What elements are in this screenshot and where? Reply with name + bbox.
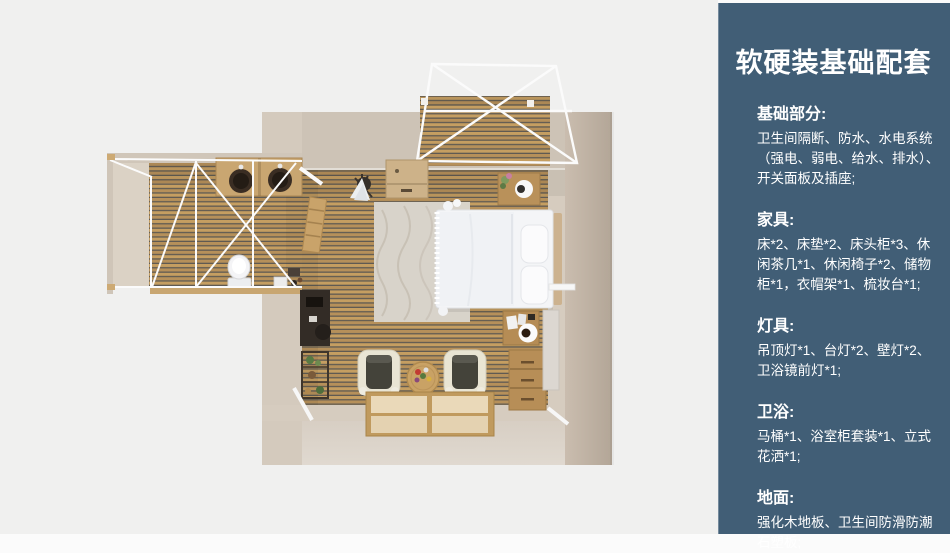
nightstand-top	[498, 173, 540, 205]
floor-mat	[366, 392, 494, 436]
render-canvas	[0, 0, 718, 534]
spec-sections: 基础部分: 卫生间隔断、防水、水电系统 （强电、弱电、给水、排水）、 开关面板及…	[719, 79, 950, 553]
pillow	[521, 225, 548, 263]
bathroom-annex	[107, 153, 302, 294]
section-bathroom: 卫浴: 马桶*1、浴室柜套装*1、立式 花洒*1;	[757, 402, 940, 467]
drawer-chest	[509, 350, 546, 410]
section-body: 强化木地板、卫生间防滑防潮 石塑板;	[757, 513, 940, 553]
section-body: 吊顶灯*1、台灯*2、壁灯*2、 卫浴镜前灯*1;	[757, 341, 940, 381]
section-body: 床*2、床垫*2、床头柜*3、休 闲茶几*1、休闲椅子*2、储物 柜*1，衣帽架…	[757, 235, 940, 295]
panel-title: 软硬装基础配套	[719, 3, 950, 79]
toilet	[228, 255, 251, 290]
armchair-left	[358, 350, 400, 396]
headboard	[553, 213, 562, 305]
armchair-right	[444, 350, 486, 396]
section-heading: 家具:	[757, 210, 940, 231]
annex-deck	[113, 163, 149, 288]
spec-panel: 软硬装基础配套 基础部分: 卫生间隔断、防水、水电系统 （强电、弱电、给水、排水…	[718, 3, 950, 534]
section-heading: 卫浴:	[757, 402, 940, 423]
section-flooring: 地面: 强化木地板、卫生间防滑防潮 石塑板;	[757, 488, 940, 553]
floorplan-render	[0, 0, 718, 534]
pillow	[521, 266, 548, 304]
tea-table	[407, 362, 439, 394]
section-heading: 灯具:	[757, 316, 940, 337]
desk	[300, 290, 331, 346]
mirror	[543, 310, 559, 390]
bathroom-vanity	[216, 158, 302, 196]
section-furniture: 家具: 床*2、床垫*2、床头柜*3、休 闲茶几*1、休闲椅子*2、储物 柜*1…	[757, 210, 940, 295]
section-body: 卫生间隔断、防水、水电系统 （强电、弱电、给水、排水）、 开关面板及插座;	[757, 129, 940, 189]
sidebar-column: 软硬装基础配套 基础部分: 卫生间隔断、防水、水电系统 （强电、弱电、给水、排水…	[718, 0, 950, 534]
section-lighting: 灯具: 吊顶灯*1、台灯*2、壁灯*2、 卫浴镜前灯*1;	[757, 316, 940, 381]
bed	[436, 199, 562, 316]
section-heading: 地面:	[757, 488, 940, 509]
dressing-table	[503, 311, 539, 345]
section-basics: 基础部分: 卫生间隔断、防水、水电系统 （强电、弱电、给水、排水）、 开关面板及…	[757, 104, 940, 189]
section-heading: 基础部分:	[757, 104, 940, 125]
section-body: 马桶*1、浴室柜套装*1、立式 花洒*1;	[757, 427, 940, 467]
annex-sill	[150, 288, 302, 294]
storage-cabinet	[386, 160, 428, 198]
